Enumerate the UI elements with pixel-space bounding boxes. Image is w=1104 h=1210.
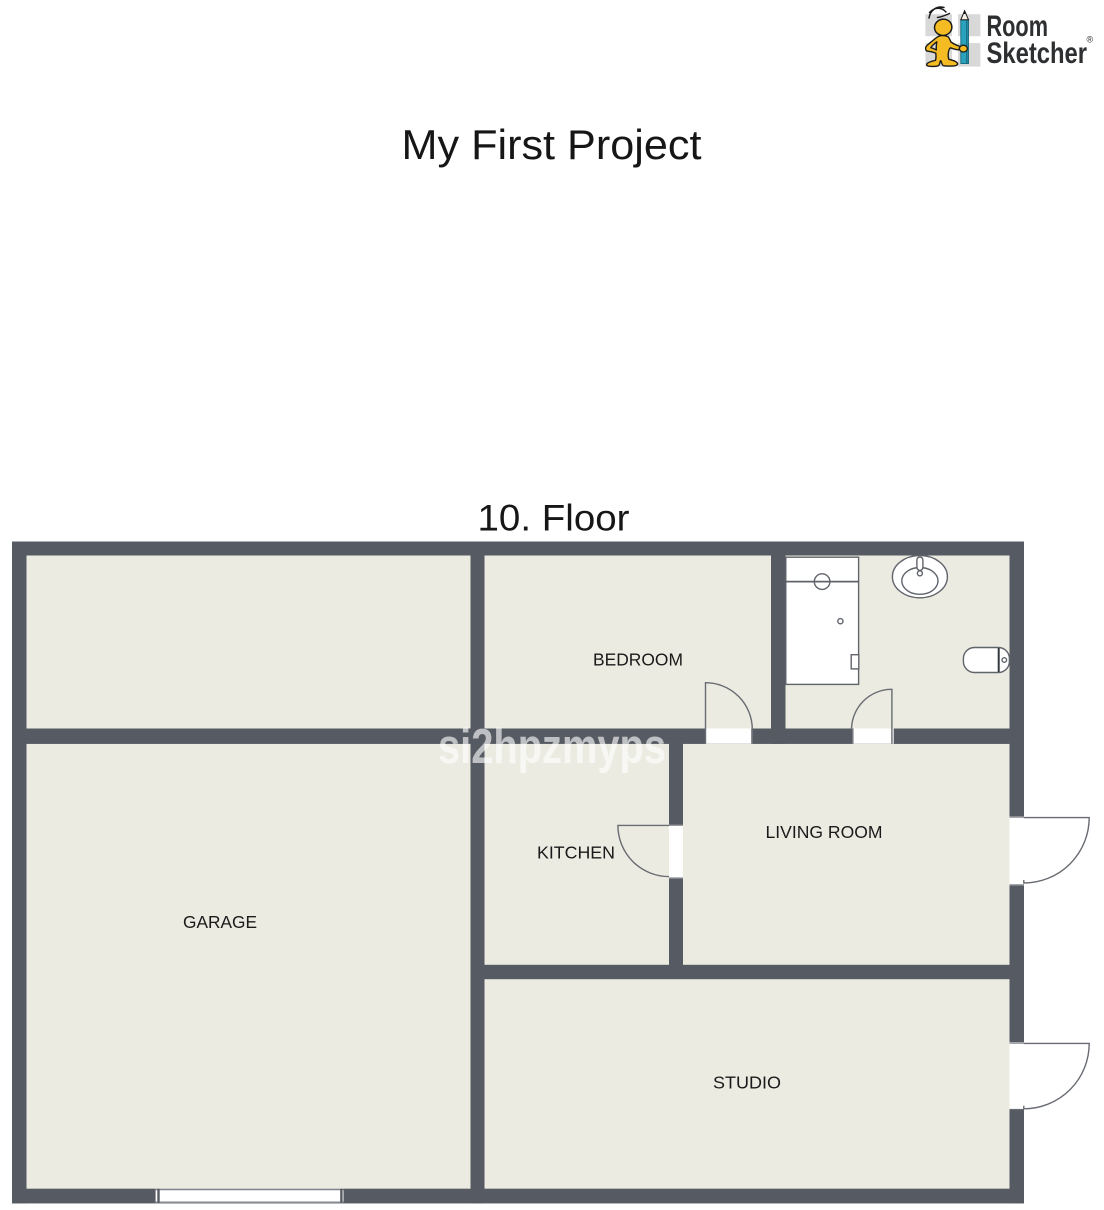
svg-text:BEDROOM: BEDROOM: [593, 650, 683, 670]
svg-text:STUDIO: STUDIO: [713, 1073, 781, 1093]
svg-text:KITCHEN: KITCHEN: [537, 843, 615, 863]
svg-text:®: ®: [1087, 35, 1094, 45]
svg-text:LIVING ROOM: LIVING ROOM: [766, 822, 883, 842]
svg-text:Sketcher: Sketcher: [987, 37, 1088, 70]
svg-text:si2hpzmyps: si2hpzmyps: [438, 720, 666, 774]
svg-text:My First Project: My First Project: [402, 121, 702, 168]
svg-text:GARAGE: GARAGE: [183, 912, 257, 932]
svg-text:10. Floor: 10. Floor: [478, 498, 630, 539]
